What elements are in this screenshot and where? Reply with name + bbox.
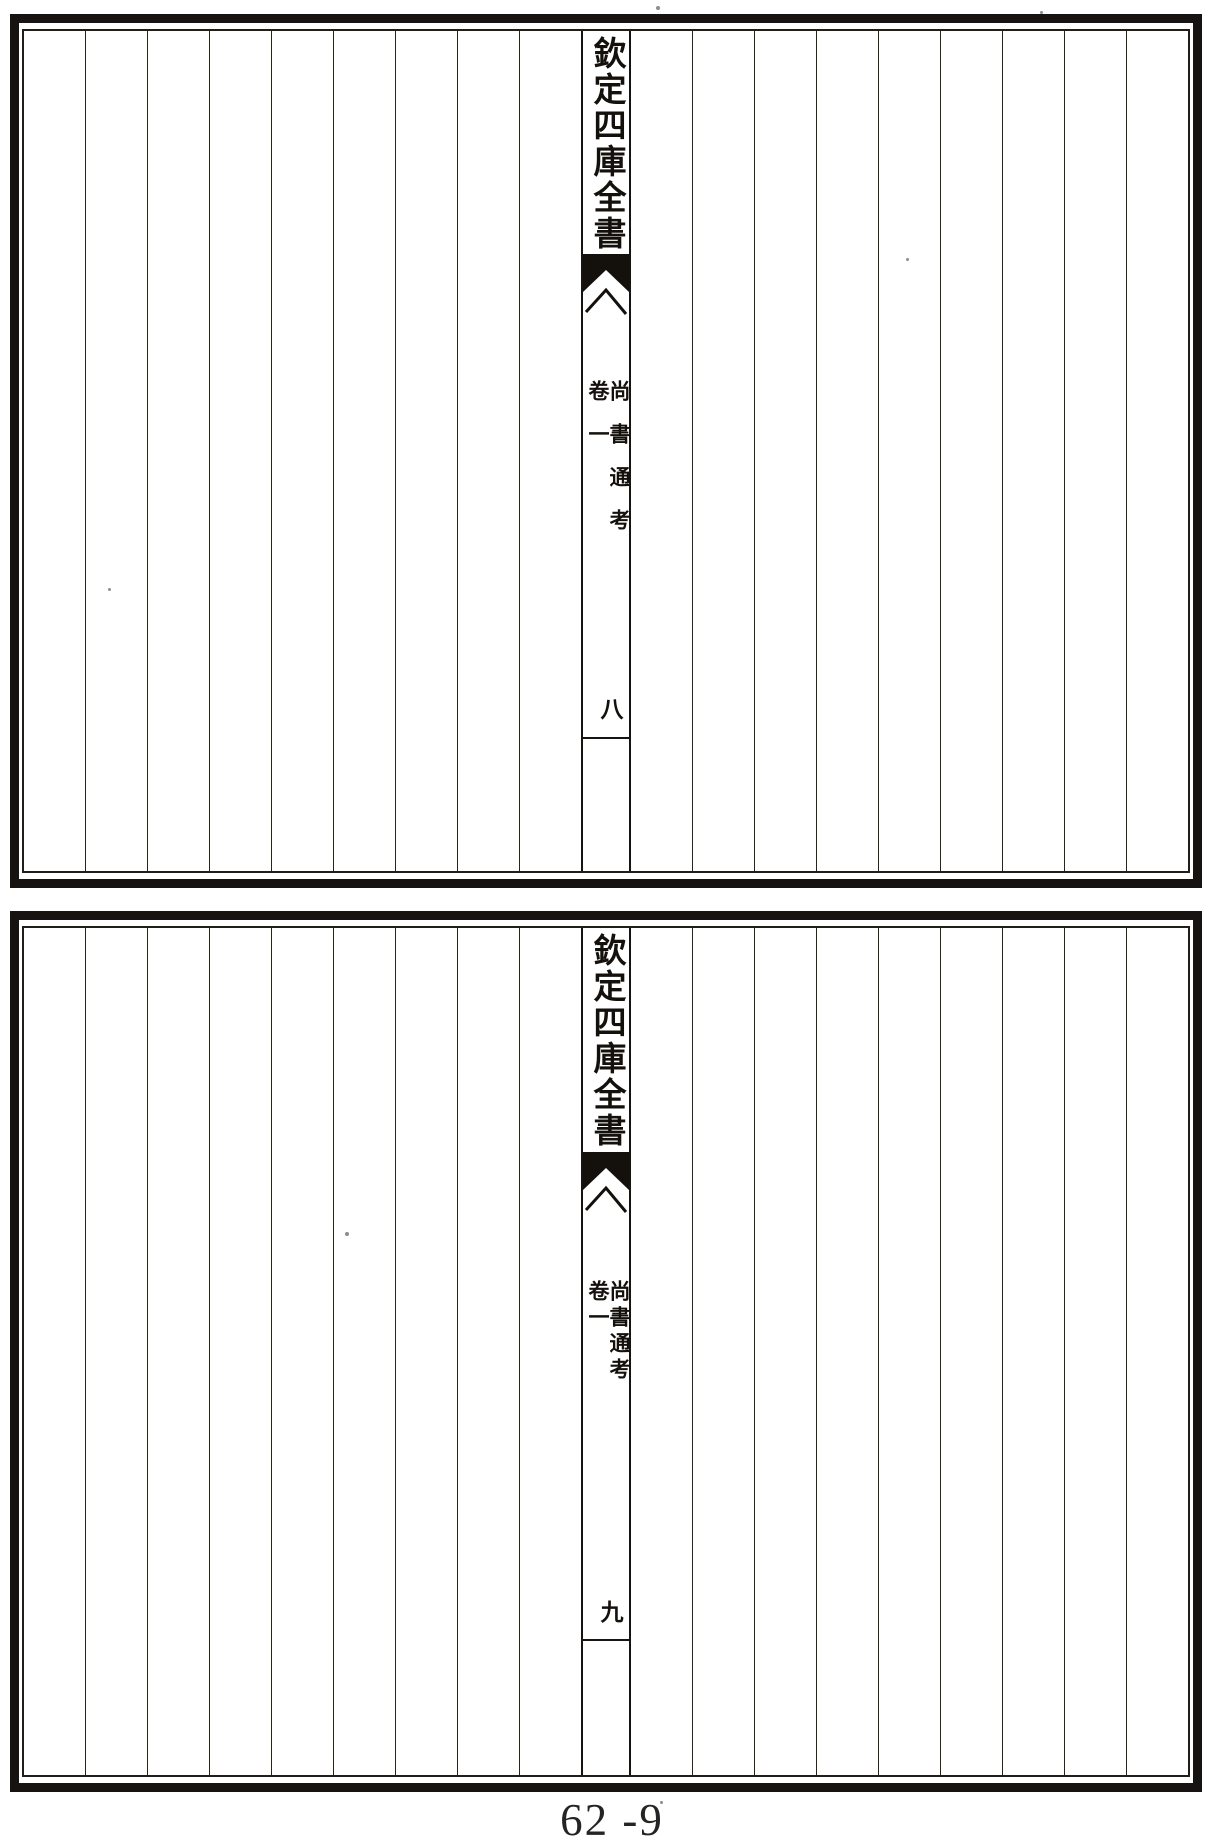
ruled-column — [85, 928, 147, 1775]
page-number: 九 — [583, 1593, 629, 1627]
columns-right — [631, 928, 1188, 1775]
ruled-column — [816, 31, 878, 871]
ruled-column — [519, 31, 581, 871]
ruled-column — [940, 31, 1002, 871]
ruled-column — [878, 928, 940, 1775]
ruled-column — [395, 31, 457, 871]
ruled-column — [519, 928, 581, 1775]
ruled-column — [333, 31, 395, 871]
scanned-book-page: 欽定四庫全書 尚書通考 卷一 八 欽定四庫全書 — [0, 0, 1224, 1843]
imprint-title: 欽定四庫全書 — [585, 933, 627, 1149]
center-column: 欽定四庫全書 尚書通考 卷一 九 — [581, 928, 631, 1775]
folio-number: 62 -9 — [0, 1794, 1224, 1843]
ruled-column — [24, 928, 85, 1775]
volume-label: 卷一 — [587, 1280, 608, 1384]
book-title: 尚書通考 — [608, 1280, 629, 1384]
page-frame-bottom: 欽定四庫全書 尚書通考 卷一 九 — [10, 911, 1202, 1792]
ruled-column — [147, 31, 209, 871]
ruled-column — [85, 31, 147, 871]
ruled-column — [1126, 928, 1188, 1775]
ruled-column — [816, 928, 878, 1775]
scan-speck — [656, 6, 660, 10]
columns-left — [24, 31, 581, 871]
ruled-column — [457, 31, 519, 871]
page-number: 八 — [583, 690, 629, 724]
column-divider — [583, 1639, 629, 1641]
ruled-column — [209, 31, 271, 871]
fishtail-mark-icon — [583, 254, 629, 318]
ruled-column — [1064, 31, 1126, 871]
ruled-column — [692, 928, 754, 1775]
page-frame-top: 欽定四庫全書 尚書通考 卷一 八 — [10, 14, 1202, 888]
scan-speck — [660, 1801, 663, 1804]
ruled-column — [457, 928, 519, 1775]
book-title-block: 尚書通考 卷一 — [587, 380, 629, 552]
scan-speck — [1040, 11, 1043, 14]
ruled-column — [692, 31, 754, 871]
ruled-column — [147, 928, 209, 1775]
ruled-column — [1126, 31, 1188, 871]
ruled-column — [1064, 928, 1126, 1775]
ruled-column — [878, 31, 940, 871]
inner-border-top: 欽定四庫全書 尚書通考 卷一 八 — [22, 29, 1190, 873]
center-column: 欽定四庫全書 尚書通考 卷一 八 — [581, 31, 631, 871]
volume-label: 卷一 — [587, 380, 608, 552]
column-divider — [583, 737, 629, 739]
ruled-column — [1002, 928, 1064, 1775]
ruled-column — [631, 31, 692, 871]
ruled-column — [333, 928, 395, 1775]
ruled-column — [754, 928, 816, 1775]
columns-left — [24, 928, 581, 1775]
scan-speck — [108, 588, 111, 591]
scan-speck — [345, 1232, 349, 1236]
ruled-column — [1002, 31, 1064, 871]
ruled-column — [209, 928, 271, 1775]
inner-border-bottom: 欽定四庫全書 尚書通考 卷一 九 — [22, 926, 1190, 1777]
ruled-column — [395, 928, 457, 1775]
fishtail-mark-icon — [583, 1152, 629, 1216]
ruled-column — [631, 928, 692, 1775]
ruled-column — [754, 31, 816, 871]
ruled-column — [271, 31, 333, 871]
ruled-column — [940, 928, 1002, 1775]
imprint-title: 欽定四庫全書 — [585, 36, 627, 252]
columns-right — [631, 31, 1188, 871]
ruled-column — [271, 928, 333, 1775]
book-title: 尚書通考 — [608, 380, 629, 552]
book-title-block: 尚書通考 卷一 — [587, 1280, 629, 1384]
scan-speck — [906, 258, 909, 261]
ruled-column — [24, 31, 85, 871]
